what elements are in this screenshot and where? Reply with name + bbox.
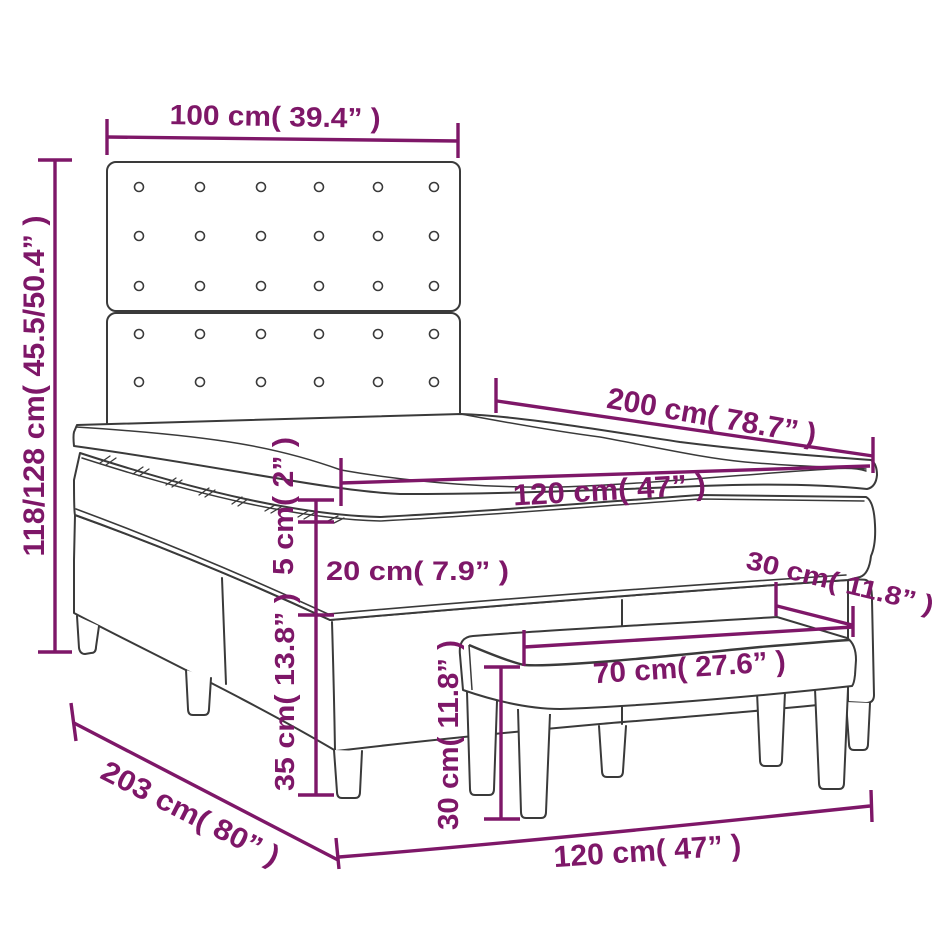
svg-text:35 cm( 13.8” ): 35 cm( 13.8” ) <box>269 593 300 791</box>
svg-text:5 cm( 2” ): 5 cm( 2” ) <box>268 437 300 575</box>
svg-text:100 cm( 39.4” ): 100 cm( 39.4” ) <box>169 99 381 134</box>
svg-text:118/128 cm( 45.5/50.4” ): 118/128 cm( 45.5/50.4” ) <box>18 216 51 557</box>
svg-text:20 cm( 7.9” ): 20 cm( 7.9” ) <box>326 556 509 586</box>
svg-text:30 cm( 11.8” ): 30 cm( 11.8” ) <box>433 640 465 830</box>
svg-text:203 cm( 80” ): 203 cm( 80” ) <box>96 755 285 872</box>
